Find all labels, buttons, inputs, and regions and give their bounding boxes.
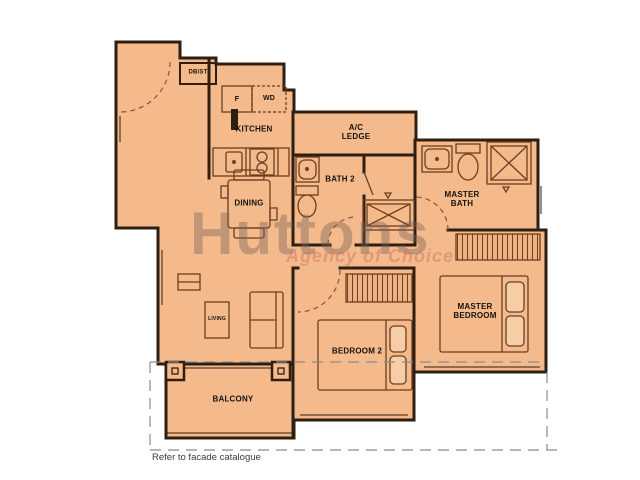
room-label-bedroom2: BEDROOM 2 bbox=[328, 348, 386, 357]
room-label-living: LIVING bbox=[204, 317, 230, 323]
bedroom2-wardrobe bbox=[346, 274, 412, 302]
floor-plan: Huttons Agency of Choice DB/ST F WD KITC… bbox=[0, 0, 640, 480]
room-label-ac-ledge: A/C LEDGE bbox=[337, 124, 375, 142]
room-label-dbst: DB/ST bbox=[178, 70, 218, 77]
room-label-kitchen: KITCHEN bbox=[224, 126, 284, 135]
room-label-master-bedroom: MASTER BEDROOM bbox=[444, 303, 506, 321]
facade-footnote: Refer to facade catalogue bbox=[152, 452, 261, 463]
pillow bbox=[390, 356, 406, 384]
pillow bbox=[506, 316, 524, 346]
pillow bbox=[390, 326, 406, 352]
room-label-fridge: F bbox=[227, 95, 247, 103]
floor-plan-drawing bbox=[0, 0, 640, 480]
room-label-washer-dryer: WD bbox=[256, 95, 282, 103]
room-label-balcony: BALCONY bbox=[203, 396, 263, 405]
room-label-bath2: BATH 2 bbox=[323, 176, 357, 185]
room-label-master-bath: MASTER BATH bbox=[436, 191, 488, 209]
pillow bbox=[506, 282, 524, 312]
room-label-dining: DINING bbox=[224, 200, 274, 209]
master-wardrobe bbox=[456, 234, 540, 260]
